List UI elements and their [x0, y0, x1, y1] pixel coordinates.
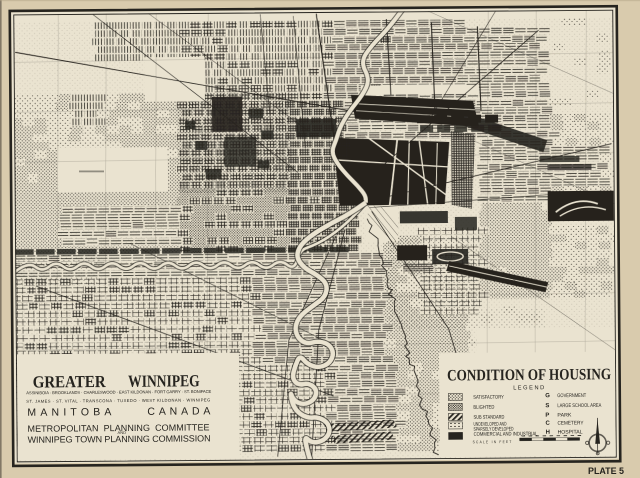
svg-text:WINNIPEG: WINNIPEG	[128, 371, 200, 391]
svg-text:HOSPITAL: HOSPITAL	[558, 429, 583, 435]
svg-text:H: H	[546, 430, 550, 436]
svg-text:PARK: PARK	[557, 413, 572, 419]
svg-text:WINNIPEG TOWN PLANNING COMMISS: WINNIPEG TOWN PLANNING COMMISSION	[28, 433, 211, 444]
svg-text:SCALE IN FEET: SCALE IN FEET	[473, 440, 513, 444]
svg-text:GREATER: GREATER	[33, 372, 107, 392]
svg-text:C: C	[545, 421, 550, 427]
svg-text:SUB STANDARD: SUB STANDARD	[473, 415, 504, 421]
svg-text:G: G	[545, 393, 550, 399]
svg-text:LARGE SCHOOL AREA: LARGE SCHOOL AREA	[557, 403, 601, 409]
svg-text:S: S	[545, 403, 549, 409]
svg-text:CEMETERY: CEMETERY	[557, 420, 584, 426]
svg-text:PLATE 5: PLATE 5	[588, 466, 625, 477]
svg-text:GOVERNMENT: GOVERNMENT	[557, 393, 587, 399]
svg-text:BLIGHTED: BLIGHTED	[473, 405, 494, 411]
svg-text:P: P	[545, 413, 549, 419]
svg-text:SATISFACTORY: SATISFACTORY	[473, 395, 504, 401]
svg-text:CONDITION OF HOUSING: CONDITION OF HOUSING	[447, 366, 612, 384]
svg-text:L E G E N D: L E G E N D	[513, 385, 544, 391]
svg-text:SPARSELY DEVELOPED: SPARSELY DEVELOPED	[474, 426, 514, 432]
